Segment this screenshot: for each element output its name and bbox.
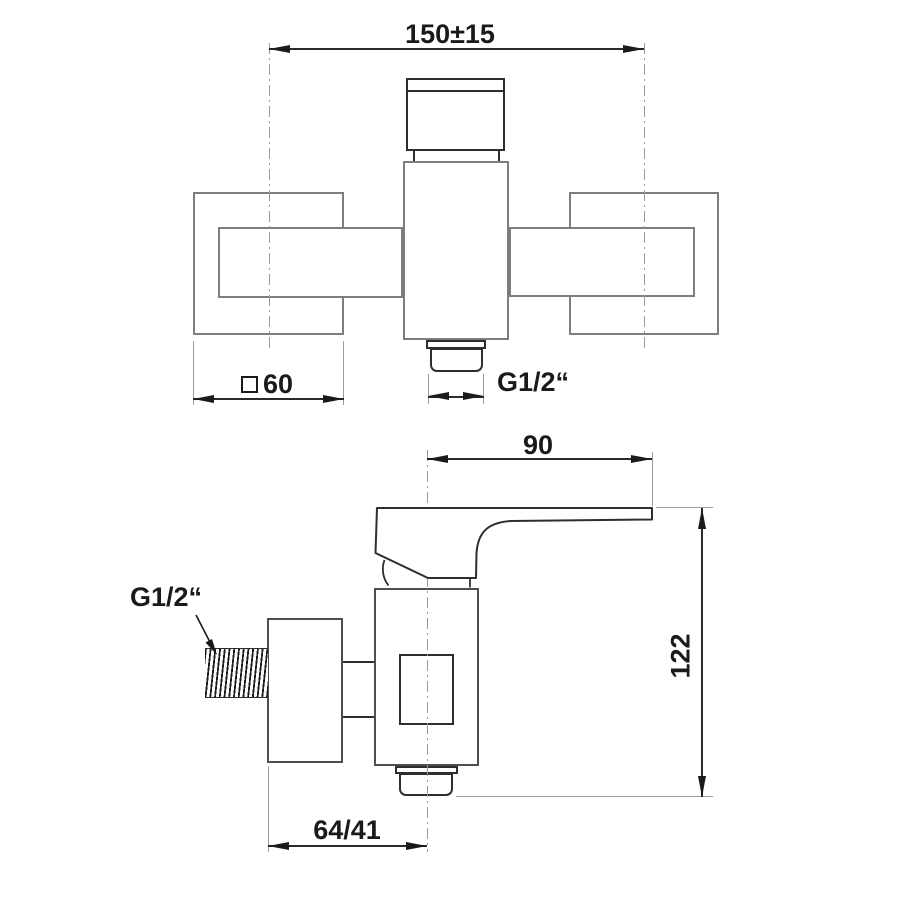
dimension-arrow <box>268 842 289 850</box>
dimension-arrow <box>698 776 706 797</box>
dimension-arrow <box>406 842 427 850</box>
handle-base-arc <box>383 560 389 586</box>
dimension-arrow <box>698 508 706 529</box>
dimension-label-wall-offset: 64/41 <box>313 817 381 844</box>
dimension-arrow <box>427 455 448 463</box>
lever-handle-outline <box>376 508 653 578</box>
side-view-overlay <box>0 0 900 899</box>
dimension-arrow <box>631 455 652 463</box>
dimension-label-inlet-thread: G1/2“ <box>130 584 202 611</box>
leader-arrowhead <box>206 639 218 655</box>
dimension-line <box>701 508 703 797</box>
extension-line <box>268 766 269 852</box>
extension-line <box>456 796 713 797</box>
dimension-line <box>268 845 427 847</box>
dimension-label-total-height: 122 <box>668 633 695 678</box>
dimension-label-lever-reach: 90 <box>523 432 553 459</box>
technical-drawing-canvas: 150±15 60 G1/2“ <box>0 0 900 899</box>
